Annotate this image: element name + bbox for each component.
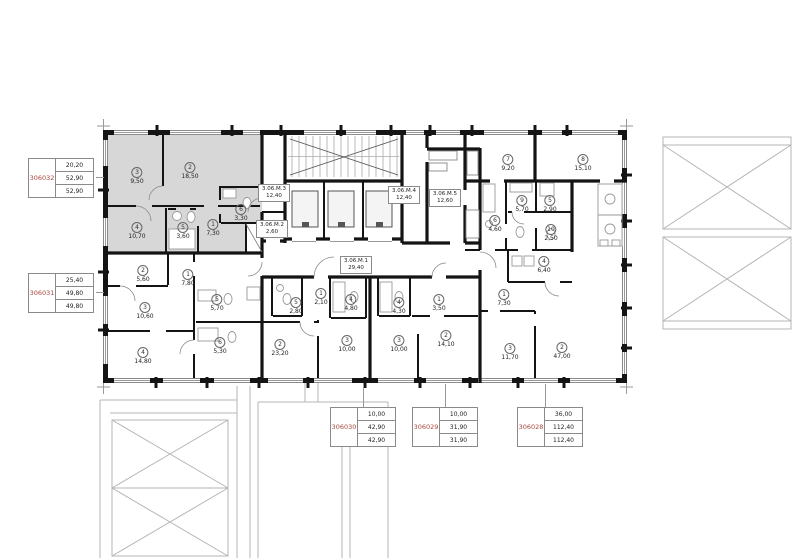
unit-tag-value: 49,80 xyxy=(56,287,93,300)
unit-tag-value: 49,80 xyxy=(56,300,93,312)
unit-tag-306029[interactable]: 306029 10,00 31,90 31,90 xyxy=(412,407,478,447)
unit-tag-value: 20,20 xyxy=(56,159,93,172)
room-number: 3 xyxy=(394,335,405,346)
unit-tag-values: 25,40 49,80 49,80 xyxy=(56,274,93,312)
staircase xyxy=(288,136,399,177)
common-area-value: 29,40 xyxy=(344,265,368,272)
room-number: 5 xyxy=(290,297,301,308)
plan-drawing xyxy=(0,0,800,560)
unit-tag-value: 25,40 xyxy=(56,274,93,287)
room-area: 2,90 xyxy=(543,207,556,213)
leader-line xyxy=(96,292,104,293)
room-area: 6,40 xyxy=(537,268,550,274)
room-number: 8 xyxy=(578,154,589,165)
unit-tag-306032[interactable]: 306032 20,20 52,90 52,90 xyxy=(28,158,94,198)
room-number: 1 xyxy=(182,269,193,280)
common-area-name: 3.06.М.2 xyxy=(260,222,284,229)
room-area: 11,70 xyxy=(501,355,518,361)
room-marker: 3 10,00 xyxy=(390,335,407,353)
room-area: 4,60 xyxy=(488,227,501,233)
room-number: 10 xyxy=(545,224,556,235)
room-area: 4,30 xyxy=(392,309,405,315)
room-marker: 4 6,40 xyxy=(537,256,550,274)
unit-tag-value: 31,90 xyxy=(440,421,477,434)
room-marker: 7 9,20 xyxy=(501,154,514,172)
unit-tag-306028[interactable]: 306028 36,00 112,40 112,40 xyxy=(517,407,583,447)
unit-id: 306030 xyxy=(331,408,358,446)
room-number: 1 xyxy=(498,289,509,300)
room-area: 9,20 xyxy=(501,166,514,172)
room-marker: 1 2,10 xyxy=(314,288,327,306)
room-number: 3 xyxy=(131,167,142,178)
room-area: 18,50 xyxy=(181,174,198,180)
room-number: 2 xyxy=(275,339,286,350)
common-area-value: 12,40 xyxy=(262,193,286,200)
room-area: 3,60 xyxy=(176,234,189,240)
room-number: 3 xyxy=(342,335,353,346)
common-area-name: 3.06.М.1 xyxy=(344,258,368,265)
room-number: 4 xyxy=(393,297,404,308)
room-marker: 2 14,10 xyxy=(437,330,454,348)
unit-id: 306029 xyxy=(413,408,440,446)
room-area: 14,10 xyxy=(437,342,454,348)
room-marker: 1 7,80 xyxy=(181,269,194,287)
unit-tag-value: 31,90 xyxy=(440,434,477,446)
room-marker: 5 3,60 xyxy=(176,222,189,240)
room-number: 2 xyxy=(137,265,148,276)
room-marker: 6 4,60 xyxy=(488,215,501,233)
room-area: 10,60 xyxy=(136,314,153,320)
unit-id: 306032 xyxy=(29,159,56,197)
room-marker: 6 5,30 xyxy=(213,337,226,355)
unit-tag-306031[interactable]: 306031 25,40 49,80 49,80 xyxy=(28,273,94,313)
room-marker: 2 5,60 xyxy=(136,265,149,283)
room-marker: 5 2,90 xyxy=(543,195,556,213)
room-number: 6 xyxy=(489,215,500,226)
room-marker: 4 4,30 xyxy=(392,297,405,315)
unit-tag-values: 10,00 42,90 42,90 xyxy=(358,408,395,446)
room-marker: 3 10,00 xyxy=(338,335,355,353)
room-marker: 1 7,30 xyxy=(497,289,510,307)
room-marker: 4 4,80 xyxy=(344,294,357,312)
room-number: 4 xyxy=(132,222,143,233)
common-area-value: 2,60 xyxy=(260,229,284,236)
room-number: 3 xyxy=(505,343,516,354)
unit-tag-values: 10,00 31,90 31,90 xyxy=(440,408,477,446)
unit-tag-value: 112,40 xyxy=(545,434,582,446)
room-marker: 1 3,50 xyxy=(432,294,445,312)
room-marker: 3 9,50 xyxy=(130,167,143,185)
room-marker: 2 47,00 xyxy=(553,342,570,360)
common-area-label: 3.06.М.3 12,40 xyxy=(258,184,290,202)
room-number: 4 xyxy=(538,256,549,267)
room-marker: 4 14,80 xyxy=(134,347,151,365)
leader-line xyxy=(96,177,104,178)
room-area: 3,50 xyxy=(432,306,445,312)
room-number: 9 xyxy=(516,195,527,206)
room-area: 5,70 xyxy=(515,207,528,213)
room-area: 2,80 xyxy=(289,309,302,315)
unit-tag-value: 112,40 xyxy=(545,421,582,434)
room-number: 5 xyxy=(177,222,188,233)
room-marker: 9 5,70 xyxy=(515,195,528,213)
room-marker: 5 2,80 xyxy=(289,297,302,315)
room-number: 5 xyxy=(544,195,555,206)
room-marker: 4 10,70 xyxy=(128,222,145,240)
room-number: 1 xyxy=(207,219,218,230)
room-area: 23,20 xyxy=(271,351,288,357)
common-area-label: 3.06.М.4 12,40 xyxy=(388,186,420,204)
leader-line xyxy=(445,384,446,407)
room-area: 7,80 xyxy=(181,281,194,287)
room-marker: 10 2,50 xyxy=(544,224,557,242)
unit-tag-values: 36,00 112,40 112,40 xyxy=(545,408,582,446)
room-area: 14,80 xyxy=(134,359,151,365)
room-marker: 1 7,30 xyxy=(206,219,219,237)
room-area: 47,00 xyxy=(553,354,570,360)
room-number: 2 xyxy=(441,330,452,341)
room-number: 1 xyxy=(315,288,326,299)
common-area-value: 12,60 xyxy=(433,198,457,205)
common-area-label: 3.06.М.2 2,60 xyxy=(256,220,288,238)
common-area-name: 3.06.М.3 xyxy=(262,186,286,193)
room-number: 6 xyxy=(214,337,225,348)
unit-tag-306030[interactable]: 306030 10,00 42,90 42,90 xyxy=(330,407,396,447)
common-area-name: 3.06.М.5 xyxy=(433,191,457,198)
leader-line xyxy=(545,384,546,407)
leader-line xyxy=(363,384,364,407)
room-number: 6 xyxy=(235,204,246,215)
common-area-label: 3.06.М.1 29,40 xyxy=(340,256,372,274)
kitchen-counter xyxy=(598,184,622,246)
unit-tag-value: 10,00 xyxy=(358,408,395,421)
room-area: 3,30 xyxy=(234,216,247,222)
room-area: 15,10 xyxy=(574,166,591,172)
room-area: 5,70 xyxy=(210,306,223,312)
room-area: 7,30 xyxy=(206,231,219,237)
unit-tag-values: 20,20 52,90 52,90 xyxy=(56,159,93,197)
room-area: 4,80 xyxy=(344,306,357,312)
room-number: 7 xyxy=(502,154,513,165)
room-area: 10,00 xyxy=(390,347,407,353)
unit-id: 306028 xyxy=(518,408,545,446)
room-area: 9,50 xyxy=(130,179,143,185)
room-number: 3 xyxy=(140,302,151,313)
room-number: 5 xyxy=(211,294,222,305)
room-area: 2,50 xyxy=(544,236,557,242)
room-marker: 2 23,20 xyxy=(271,339,288,357)
room-marker: 6 3,30 xyxy=(234,204,247,222)
floor-plan-canvas: 306032 20,20 52,90 52,90 306031 25,40 49… xyxy=(0,0,800,560)
unit-tag-value: 42,90 xyxy=(358,421,395,434)
room-area: 10,70 xyxy=(128,234,145,240)
unit-tag-value: 42,90 xyxy=(358,434,395,446)
room-marker: 8 15,10 xyxy=(574,154,591,172)
unit-tag-value: 10,00 xyxy=(440,408,477,421)
unit-id: 306031 xyxy=(29,274,56,312)
room-area: 5,30 xyxy=(213,349,226,355)
room-marker: 3 11,70 xyxy=(501,343,518,361)
unit-tag-value: 52,90 xyxy=(56,172,93,185)
elevator-bank xyxy=(292,191,392,242)
room-number: 2 xyxy=(185,162,196,173)
room-marker: 5 5,70 xyxy=(210,294,223,312)
common-area-label: 3.06.М.5 12,60 xyxy=(429,189,461,207)
unit-tag-value: 36,00 xyxy=(545,408,582,421)
common-area-name: 3.06.М.4 xyxy=(392,188,416,195)
room-number: 4 xyxy=(345,294,356,305)
common-area-value: 12,40 xyxy=(392,195,416,202)
room-number: 1 xyxy=(433,294,444,305)
room-marker: 2 18,50 xyxy=(181,162,198,180)
room-number: 2 xyxy=(557,342,568,353)
room-area: 5,60 xyxy=(136,277,149,283)
room-area: 10,00 xyxy=(338,347,355,353)
room-number: 4 xyxy=(138,347,149,358)
room-marker: 3 10,60 xyxy=(136,302,153,320)
room-area: 2,10 xyxy=(314,300,327,306)
room-area: 7,30 xyxy=(497,301,510,307)
unit-tag-value: 52,90 xyxy=(56,185,93,197)
